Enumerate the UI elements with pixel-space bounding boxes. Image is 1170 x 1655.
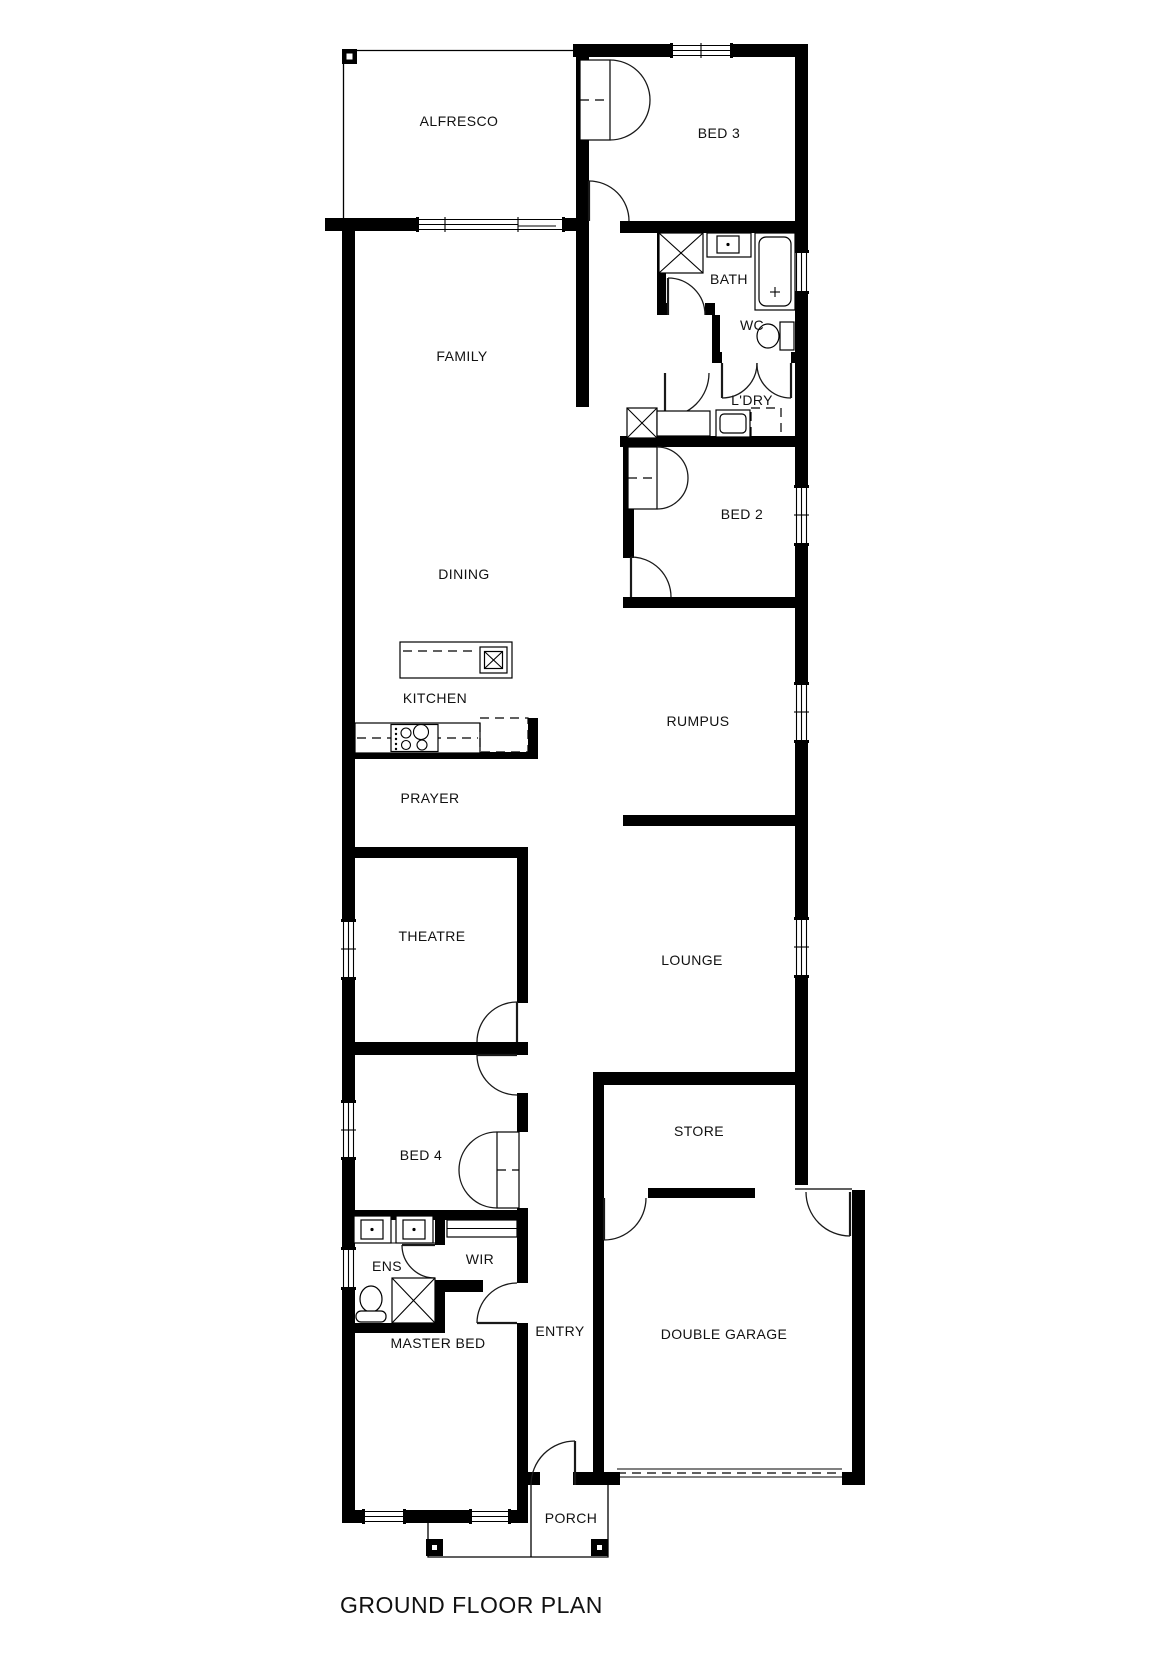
wall-bath-bottom-a <box>657 303 668 315</box>
room-label-prayer: PRAYER <box>401 790 460 806</box>
bath-shower <box>659 233 703 273</box>
plan-title: GROUND FLOOR PLAN <box>340 1592 603 1618</box>
room-label-wc: WC <box>740 317 764 333</box>
fridge-space <box>480 718 528 752</box>
laundry-appliance <box>751 408 781 437</box>
kitchen-bench <box>355 723 480 753</box>
wall-wc-bottom-b <box>791 352 795 363</box>
room-label-wir: WIR <box>466 1251 494 1267</box>
wall-garage-right <box>852 1190 865 1485</box>
room-label-master: MASTER BED <box>390 1335 485 1351</box>
wall-garage-bottom-a <box>593 1472 617 1485</box>
window-alfresco-slider <box>416 217 565 232</box>
room-label-bed2: BED 2 <box>721 506 763 522</box>
door-linen <box>665 373 709 417</box>
window-rumpus <box>794 682 809 743</box>
room-label-kitchen: KITCHEN <box>403 690 467 706</box>
alfresco-outline <box>344 51 577 219</box>
room-label-ldry: L'DRY <box>731 392 773 408</box>
porch-post-right-center <box>597 1545 602 1550</box>
door-bed3 <box>589 181 629 221</box>
wall-bed2-bottom <box>623 597 795 608</box>
wall-store-top <box>593 1072 795 1085</box>
room-label-bed4: BED 4 <box>400 1147 442 1163</box>
window-bath <box>794 250 809 294</box>
wall-wc-left <box>712 315 720 352</box>
bed3-wardrobe <box>580 60 650 140</box>
wall-entry-bottom-a <box>517 1472 540 1485</box>
wall-right-outer <box>795 44 808 1185</box>
bathtub <box>755 233 795 310</box>
wall-ens-master <box>342 1323 445 1333</box>
garage-door <box>617 1469 842 1477</box>
room-label-ens: ENS <box>372 1258 402 1274</box>
wall-rumpus-lounge <box>623 815 795 826</box>
room-label-garage: DOUBLE GARAGE <box>661 1326 788 1342</box>
room-label-store: STORE <box>674 1123 724 1139</box>
ens-vanity <box>342 1216 435 1243</box>
floor-plan-page: ALFRESCO BED 3 FAMILY BATH WC L'DRY BED … <box>0 0 1170 1655</box>
wall-ens-right-a <box>435 1220 445 1245</box>
bed2-wardrobe <box>628 447 688 509</box>
wall-hall-a <box>517 858 528 1003</box>
bed4-closet <box>459 1132 519 1208</box>
wall-bath-bottom-b <box>705 303 715 315</box>
floor-plan-canvas: ALFRESCO BED 3 FAMILY BATH WC L'DRY BED … <box>0 0 1170 1655</box>
wall-store-bottom <box>648 1188 755 1198</box>
window-theatre <box>341 919 356 980</box>
fixtures <box>342 60 842 1477</box>
kitchen-island <box>400 642 512 678</box>
wall-garage-bottom-b <box>842 1472 865 1485</box>
door-ens <box>402 1245 435 1278</box>
room-label-rumpus: RUMPUS <box>666 713 729 729</box>
wall-wir-master <box>445 1280 483 1292</box>
door-bath <box>668 278 705 315</box>
door-theatre <box>477 1002 517 1042</box>
window-master-right <box>469 1509 511 1524</box>
wall-bed3-bath <box>620 221 795 233</box>
room-label-entry: ENTRY <box>535 1323 584 1339</box>
wall-wc-bottom-a <box>712 352 722 363</box>
wall-hall-b <box>517 1093 528 1132</box>
room-label-alfresco: ALFRESCO <box>420 113 499 129</box>
room-label-bath: BATH <box>710 271 748 287</box>
door-bed2 <box>631 557 671 597</box>
ens-shower <box>392 1278 435 1323</box>
ens-toilet <box>356 1286 386 1322</box>
window-master-left <box>362 1509 406 1524</box>
wall-garage-left <box>593 1085 604 1485</box>
wall-theatre-bottom <box>342 1042 528 1055</box>
window-bed4 <box>341 1100 356 1160</box>
window-ens <box>341 1247 356 1290</box>
wall-theatre-top <box>342 847 528 858</box>
door-garage-side <box>806 1192 850 1236</box>
room-label-bed3: BED 3 <box>698 125 740 141</box>
room-label-family: FAMILY <box>436 348 487 364</box>
wall-kitchen-stub <box>528 718 538 759</box>
window-bed3-top <box>670 43 733 58</box>
window-lounge <box>794 917 809 978</box>
room-label-dining: DINING <box>438 566 489 582</box>
alfresco-post-center <box>347 54 353 60</box>
porch-post-left-center <box>432 1545 437 1550</box>
door-store-garage <box>604 1198 646 1240</box>
laundry-tub <box>716 410 750 437</box>
linen-cupboard <box>627 408 710 438</box>
wir-shelf <box>447 1220 517 1237</box>
room-label-theatre: THEATRE <box>398 928 465 944</box>
door-bed4 <box>477 1055 517 1095</box>
room-label-lounge: LOUNGE <box>661 952 723 968</box>
room-label-porch: PORCH <box>545 1510 598 1526</box>
window-bed2 <box>794 485 809 546</box>
bath-vanity <box>707 233 751 257</box>
